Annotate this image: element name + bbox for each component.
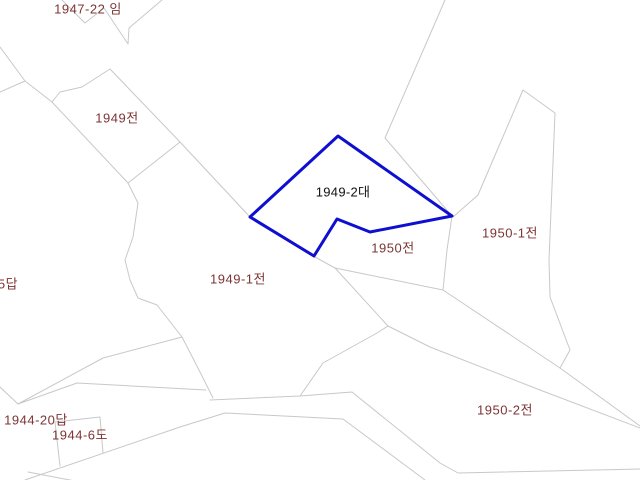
map-viewport: 1947-22 임 1949전 1949-2대 1950전 1950-1전 19… [0, 0, 640, 480]
map-canvas[interactable] [0, 0, 640, 480]
parcel-label-1950-1: 1950-1전 [482, 223, 538, 242]
parcel-boundaries [0, 0, 640, 480]
parcel-label-1944-6: 1944-6도 [52, 425, 108, 444]
parcel-label-1947-22: 1947-22 임 [54, 0, 122, 18]
parcel-label-5: 5답 [0, 274, 18, 293]
parcel-label-1950-2: 1950-2전 [477, 400, 533, 419]
parcel-label-1950: 1950전 [371, 238, 414, 257]
parcel-label-1949-2: 1949-2대 [316, 182, 371, 201]
parcel-label-1949: 1949전 [95, 108, 138, 127]
parcel-label-1949-1: 1949-1전 [210, 269, 266, 288]
